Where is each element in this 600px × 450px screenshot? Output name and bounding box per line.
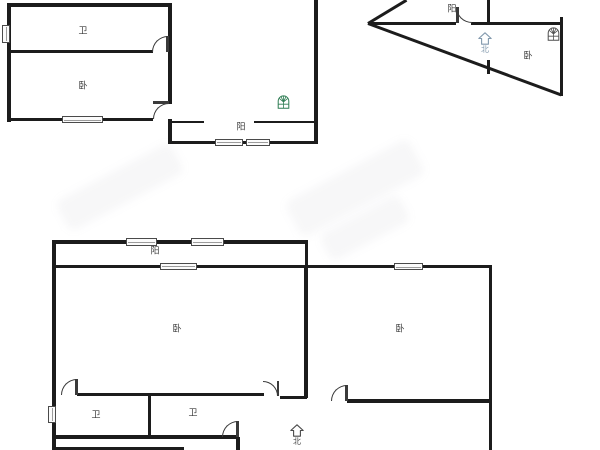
compass-north-label: 北 [293,438,301,446]
room-label-bedroom: 卧 [395,326,404,335]
door-leaf [345,385,348,401]
room-label-balcony: 阳 [150,248,159,257]
wall-segment [487,0,490,23]
wall-segment [560,17,564,96]
window [160,263,197,271]
house-window-logo-icon [276,95,291,109]
floor-plan-canvas: 卫 卧 阳 阳 卧 阳 卧 卧 卫 卫 北 北 [0,0,600,450]
window [215,139,243,147]
window [126,238,157,246]
door-leaf [75,379,78,395]
door-swing-arc [153,103,169,119]
wall-segment [52,435,239,439]
wall-segment [7,50,153,53]
window [62,116,103,123]
wall-segment [347,399,490,403]
door-leaf [456,7,459,23]
wall-segment [77,393,264,396]
wall-segment [168,3,172,104]
wall-segment [471,22,561,25]
compass-north-label: 北 [481,46,489,54]
wall-segment [304,266,308,398]
wall-segment [52,240,308,244]
room-label-bathroom: 卫 [188,410,197,419]
door-leaf [277,381,280,396]
wall-segment [52,447,184,450]
window [246,139,270,147]
wall-segment [7,3,172,7]
north-compass: 北 [290,424,304,446]
room-label-bedroom: 卧 [172,326,181,335]
wall-segment [52,265,492,269]
wall-segment [280,396,307,399]
room-label-bathroom: 卫 [91,412,100,421]
wall-segment [7,3,11,122]
wall-segment [254,121,315,124]
north-compass: 北 [478,32,492,54]
door-leaf [166,36,169,52]
room-label-bedroom: 卧 [78,83,87,92]
north-compass-icon [478,32,492,45]
watermark-smudge [55,141,186,232]
door-leaf [153,101,169,104]
door-leaf [236,421,239,437]
wall-segment [236,437,240,450]
wall-segment [172,121,204,124]
window [48,406,56,423]
room-label-bathroom: 卫 [78,28,87,37]
wall-segment [489,266,493,450]
wall-segment [368,22,456,25]
window [2,25,10,43]
room-label-bedroom: 卧 [523,53,532,62]
wall-segment [148,395,151,437]
window [394,263,423,270]
wall-diagonal [367,22,561,96]
window [191,238,224,246]
wall-segment [168,141,318,145]
north-compass-icon [290,424,304,437]
room-label-balcony: 阳 [236,124,245,133]
